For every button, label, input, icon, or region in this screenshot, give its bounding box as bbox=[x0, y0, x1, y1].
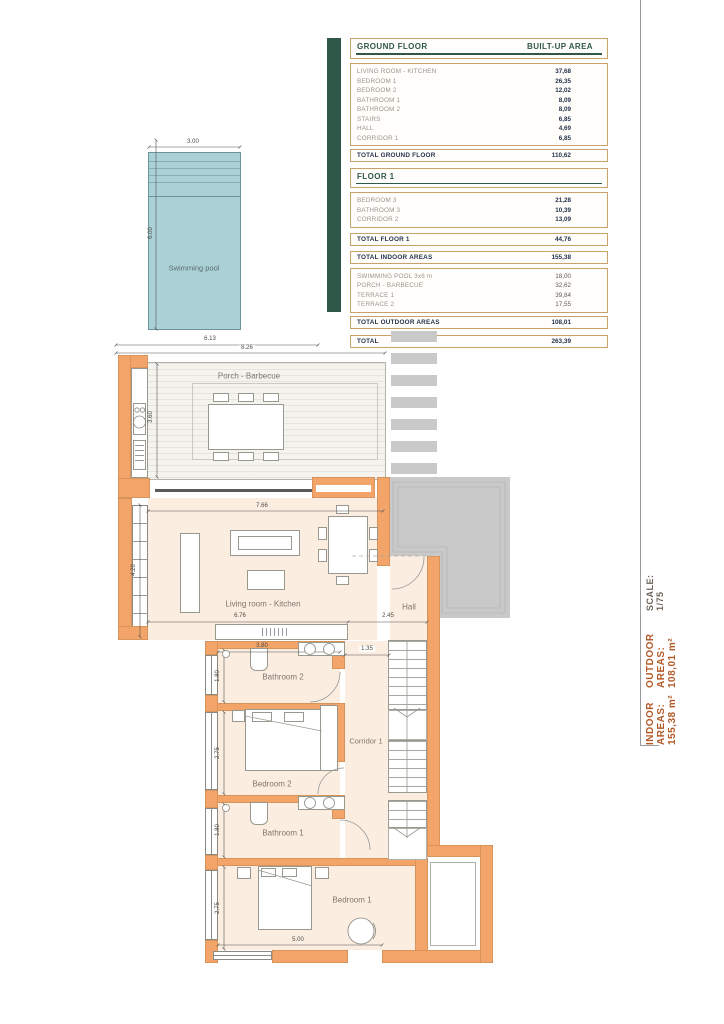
total-floor1-row: TOTAL FLOOR 144,76 bbox=[350, 233, 608, 246]
porch-label: Porch - Barbecue bbox=[218, 372, 280, 381]
pillow bbox=[284, 712, 304, 722]
total-outdoor-areas-row: TOTAL OUTDOOR AREAS108,01 bbox=[350, 316, 608, 329]
dim-label: 1.80 bbox=[215, 824, 221, 836]
wardrobe bbox=[320, 705, 338, 771]
bathroom2-label: Bathroom 2 bbox=[262, 673, 303, 682]
porch-sink-lines bbox=[135, 445, 144, 463]
kitchen-island bbox=[180, 533, 200, 613]
stairs bbox=[388, 640, 427, 710]
outdoor-rows: SWIMMING POOL 3x6 m18,00 PORCH - BARBECU… bbox=[350, 268, 608, 313]
pool-step-line bbox=[149, 175, 240, 176]
exterior-step bbox=[391, 375, 437, 386]
chair bbox=[369, 527, 378, 540]
wall bbox=[382, 950, 493, 963]
ground-floor-title: GROUND FLOOR bbox=[357, 42, 428, 51]
dim-label: 6.13 bbox=[202, 336, 218, 342]
ground-floor-header: GROUND FLOOR BUILT-UP AREA bbox=[350, 38, 608, 59]
dining-table bbox=[328, 516, 368, 574]
nightstand bbox=[315, 867, 329, 879]
table-row: LIVING ROOM - KITCHEN37,68 bbox=[351, 67, 607, 77]
table-row: TERRACE 139,84 bbox=[351, 291, 607, 301]
chair bbox=[336, 576, 349, 585]
pool-step-line bbox=[149, 168, 240, 169]
exterior-step bbox=[391, 353, 437, 364]
areas-summary: INDOOR AREAS: 155,38 m² OUTDOOR AREAS: 1… bbox=[645, 575, 678, 745]
table-row: BATHROOM 18,09 bbox=[351, 96, 607, 106]
table-row: PORCH - BARBECUE32,62 bbox=[351, 281, 607, 291]
floor-plan-sheet: { "area_table": { "ground": { "header": … bbox=[0, 0, 724, 1024]
sheet-divider-tick bbox=[640, 745, 659, 746]
dim-label: 5.00 bbox=[292, 937, 304, 943]
dim-label: 7.66 bbox=[256, 503, 268, 509]
nightstand bbox=[237, 867, 251, 879]
table-accent-bar bbox=[327, 38, 341, 312]
dim-label: 6.76 bbox=[234, 613, 246, 619]
sheet-divider-line bbox=[640, 0, 641, 745]
table-row: STAIRS6,85 bbox=[351, 115, 607, 125]
living-room-label: Living room - Kitchen bbox=[225, 600, 300, 609]
total-ground-floor-row: TOTAL GROUND FLOOR110,62 bbox=[350, 149, 608, 162]
exterior-step bbox=[391, 463, 437, 474]
dim-label: 3.60 bbox=[148, 411, 154, 423]
sink-counter bbox=[298, 796, 345, 810]
toilet bbox=[250, 648, 268, 671]
dim-label: 1.80 bbox=[215, 670, 221, 682]
chair bbox=[318, 527, 327, 540]
pillow bbox=[282, 868, 297, 877]
toilet bbox=[250, 802, 268, 825]
total-indoor-areas-row: TOTAL INDOOR AREAS155,38 bbox=[350, 251, 608, 264]
dim-label: 2.45 bbox=[382, 613, 394, 619]
rear-terrace-outline bbox=[430, 862, 476, 946]
wall bbox=[118, 478, 150, 498]
sofa-seat bbox=[238, 536, 292, 550]
stairs bbox=[388, 740, 427, 793]
table-row: BATHROOM 28,09 bbox=[351, 105, 607, 115]
chair bbox=[238, 452, 254, 461]
wall bbox=[118, 626, 148, 640]
terrace bbox=[437, 557, 510, 618]
wall bbox=[205, 641, 218, 655]
hall-room bbox=[390, 556, 427, 640]
pool-label: Swimming pool bbox=[169, 264, 220, 273]
chair bbox=[238, 393, 254, 402]
dim-label: 1.35 bbox=[359, 646, 375, 652]
coffee-table bbox=[247, 570, 285, 590]
kitchen-sink bbox=[262, 628, 288, 636]
wall bbox=[377, 477, 390, 566]
dim-label: 6.00 bbox=[148, 227, 154, 239]
table-row: BEDROOM 212,02 bbox=[351, 86, 607, 96]
floor1-header: FLOOR 1 bbox=[350, 168, 608, 188]
table-row: BATHROOM 310,39 bbox=[351, 206, 607, 216]
dim-label: 2.75 bbox=[215, 902, 221, 914]
indoor-areas-text: INDOOR AREAS: 155,38 m² bbox=[645, 689, 678, 745]
wall bbox=[205, 695, 218, 712]
exterior-step bbox=[391, 441, 437, 452]
scale-text: SCALE: 1/75 bbox=[645, 575, 678, 612]
pool-step-line bbox=[149, 161, 240, 162]
wall bbox=[480, 845, 493, 963]
outdoor-areas-text: OUTDOOR AREAS: 108,01 m² bbox=[645, 627, 678, 688]
table-row: BEDROOM 321,28 bbox=[351, 196, 607, 206]
bathroom1-label: Bathroom 1 bbox=[262, 829, 303, 838]
exterior-step bbox=[391, 331, 437, 342]
dim-label: 3.00 bbox=[185, 139, 201, 145]
floor1-title: FLOOR 1 bbox=[357, 172, 394, 181]
table-row: SWIMMING POOL 3x6 m18,00 bbox=[351, 272, 607, 282]
wall bbox=[415, 858, 428, 953]
stairs-landing bbox=[388, 828, 427, 860]
ground-floor-rows: LIVING ROOM - KITCHEN37,68 BEDROOM 126,3… bbox=[350, 63, 608, 146]
pillow bbox=[261, 868, 276, 877]
window bbox=[213, 951, 272, 960]
grand-total-row: TOTAL263,39 bbox=[350, 335, 608, 348]
chair bbox=[263, 393, 279, 402]
table-row: HALL4,69 bbox=[351, 124, 607, 134]
pool-edge-line bbox=[149, 196, 240, 197]
wall bbox=[205, 790, 218, 808]
stairs bbox=[388, 800, 427, 828]
bbq-grill bbox=[133, 403, 146, 435]
table-row: CORRIDOR 213,09 bbox=[351, 215, 607, 225]
chair bbox=[336, 505, 349, 514]
floor1-rows: BEDROOM 321,28 BATHROOM 310,39 CORRIDOR … bbox=[350, 192, 608, 228]
bedroom1-label: Bedroom 1 bbox=[332, 896, 371, 905]
area-table: GROUND FLOOR BUILT-UP AREA LIVING ROOM -… bbox=[350, 38, 608, 348]
table-row: CORRIDOR 16,85 bbox=[351, 134, 607, 144]
exterior-step bbox=[391, 397, 437, 408]
chair bbox=[213, 393, 229, 402]
pillow bbox=[252, 712, 272, 722]
nightstand bbox=[232, 710, 245, 722]
exterior-step bbox=[391, 419, 437, 430]
hall-label: Hall bbox=[402, 603, 416, 612]
door-pocket bbox=[316, 485, 371, 492]
dim-label: 3.80 bbox=[256, 643, 268, 649]
table-row: TERRACE 217,55 bbox=[351, 300, 607, 310]
chair bbox=[318, 549, 327, 562]
table-row: BEDROOM 126,35 bbox=[351, 77, 607, 87]
wall bbox=[118, 355, 131, 498]
dim-label: 2.75 bbox=[215, 747, 221, 759]
dim-label: 4.20 bbox=[131, 564, 137, 576]
wall bbox=[427, 556, 440, 850]
dining-table bbox=[208, 404, 284, 450]
pool-step-line bbox=[149, 182, 240, 183]
built-up-area-title: BUILT-UP AREA bbox=[527, 42, 593, 51]
chair bbox=[369, 549, 378, 562]
sink-counter bbox=[298, 642, 345, 656]
wall bbox=[272, 950, 348, 963]
corridor1-label: Corridor 1 bbox=[349, 737, 382, 746]
dim-label: 8.26 bbox=[239, 345, 255, 351]
stairs-landing bbox=[388, 710, 427, 740]
swimming-pool bbox=[148, 152, 241, 330]
wall bbox=[118, 498, 132, 640]
wall bbox=[205, 855, 218, 870]
chair bbox=[213, 452, 229, 461]
chair bbox=[263, 452, 279, 461]
terrace bbox=[388, 477, 510, 557]
bedroom2-label: Bedroom 2 bbox=[252, 780, 291, 789]
